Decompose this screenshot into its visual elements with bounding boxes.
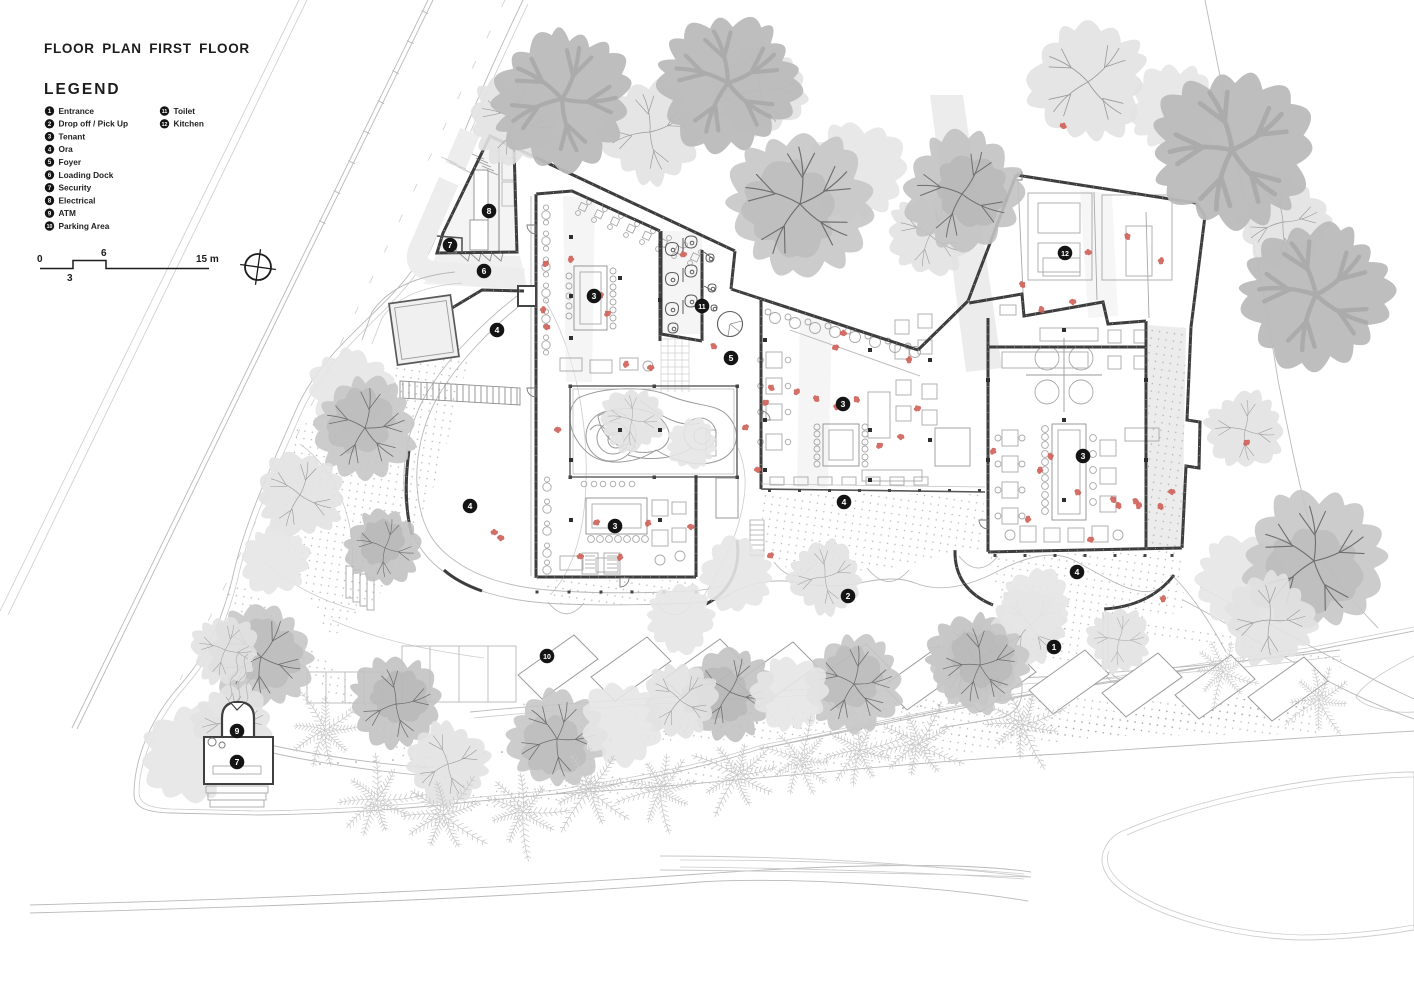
svg-text:4: 4 — [468, 501, 473, 511]
svg-text:3: 3 — [67, 273, 73, 284]
svg-text:3: 3 — [841, 399, 846, 409]
svg-text:7: 7 — [235, 757, 240, 767]
svg-text:3: 3 — [592, 291, 597, 301]
svg-text:3: 3 — [613, 521, 618, 531]
svg-text:9: 9 — [235, 726, 240, 736]
svg-text:10: 10 — [543, 654, 551, 661]
svg-text:Kitchen: Kitchen — [174, 119, 204, 129]
svg-text:Tenant: Tenant — [59, 132, 86, 142]
svg-text:4: 4 — [1075, 567, 1080, 577]
svg-text:6: 6 — [101, 248, 107, 259]
svg-text:1: 1 — [1052, 642, 1057, 652]
svg-text:Parking Area: Parking Area — [59, 221, 110, 231]
svg-text:11: 11 — [162, 109, 168, 115]
svg-text:ATM: ATM — [59, 208, 76, 218]
svg-text:Entrance: Entrance — [59, 106, 95, 116]
svg-text:6: 6 — [482, 266, 487, 276]
svg-text:12: 12 — [1061, 251, 1069, 258]
svg-text:Security: Security — [59, 183, 92, 193]
svg-text:Toilet: Toilet — [174, 106, 196, 116]
svg-text:Loading Dock: Loading Dock — [59, 170, 114, 180]
svg-text:5: 5 — [729, 353, 734, 363]
svg-text:15 m: 15 m — [196, 254, 219, 265]
svg-text:Electrical: Electrical — [59, 195, 96, 205]
svg-text:7: 7 — [448, 240, 453, 250]
svg-text:FLOOR PLAN FIRST FLOOR: FLOOR PLAN FIRST FLOOR — [44, 41, 250, 56]
svg-text:0: 0 — [37, 254, 43, 265]
svg-text:12: 12 — [162, 122, 168, 128]
svg-text:11: 11 — [698, 304, 706, 311]
svg-text:3: 3 — [1081, 451, 1086, 461]
svg-text:Drop off / Pick Up: Drop off / Pick Up — [59, 119, 129, 129]
svg-text:8: 8 — [487, 206, 492, 216]
svg-text:Ora: Ora — [59, 144, 74, 154]
svg-text:4: 4 — [842, 497, 847, 507]
svg-text:4: 4 — [495, 325, 500, 335]
svg-text:LEGEND: LEGEND — [44, 81, 121, 98]
svg-text:10: 10 — [47, 224, 53, 230]
svg-text:Foyer: Foyer — [59, 157, 82, 167]
svg-text:2: 2 — [846, 591, 851, 601]
